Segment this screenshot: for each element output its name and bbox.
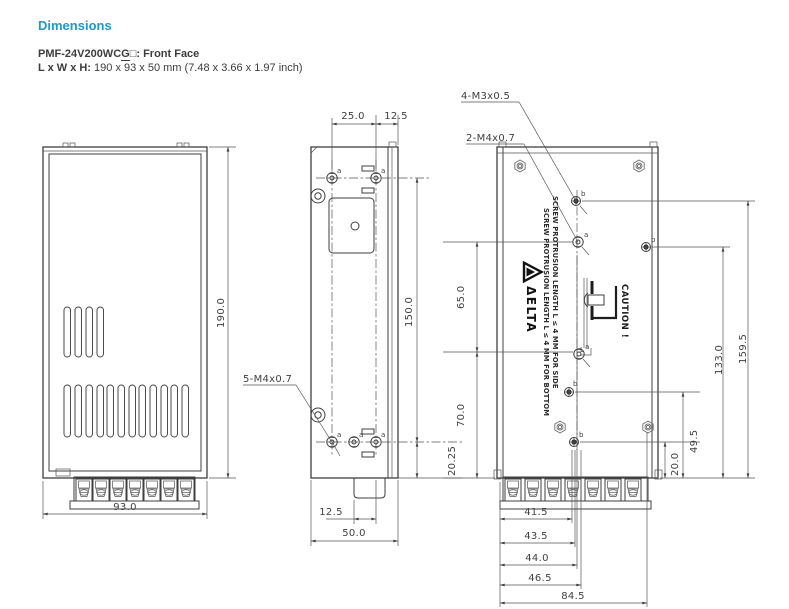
side-dim-12-5-top: 12.5 [384, 111, 407, 122]
back-terminal-block [500, 477, 651, 509]
delta-logo: ΔELTA [524, 263, 542, 333]
hole-marker: b [581, 190, 586, 198]
dimension-drawing: 190.0 93.0 a a a a a [0, 0, 789, 609]
back-dim-133: 133.0 [714, 345, 725, 375]
caution-l-label: L [580, 346, 584, 354]
hole-marker: a [381, 167, 385, 175]
hole-marker: b [651, 236, 656, 244]
back-dim-65: 65.0 [456, 286, 467, 309]
back-dim-43-5: 43.5 [524, 531, 547, 542]
hole-marker: a [359, 431, 363, 439]
hole-marker: a [337, 431, 341, 439]
caution-label: CAUTION ! [619, 284, 629, 338]
side-bottom-offset-dim: 20.25 [447, 446, 458, 476]
front-view-drawing: 190.0 93.0 [43, 143, 236, 519]
back-dim-20: 20.0 [670, 453, 681, 476]
back-dim-44: 44.0 [525, 553, 548, 564]
side-hole-callout: 5-M4x0.7 [243, 374, 292, 385]
side-view-drawing: a a a a a 5-M4x0.7 25.0 12.5 [243, 111, 462, 546]
note-screw-side: SCREW PROTRUSION LENGTH L ≤ 4 MM FOR SID… [551, 196, 559, 389]
back-dim-84-5: 84.5 [561, 591, 584, 602]
back-dim-46-5: 46.5 [528, 573, 551, 584]
front-height-dim: 190.0 [216, 298, 227, 328]
hole-marker: b [579, 431, 584, 439]
callout-m4: 2-M4x0.7 [466, 133, 515, 144]
side-height-dim: 150.0 [404, 297, 415, 327]
note-screw-bottom: SCREW PROTRUSION LENGTH L ≤ 4 MM FOR BOT… [542, 208, 550, 416]
back-dim-41-5: 41.5 [524, 507, 547, 518]
side-width-dim: 50.0 [342, 528, 365, 539]
back-dim-70: 70.0 [456, 404, 467, 427]
back-dim-49-5: 49.5 [689, 430, 700, 453]
hole-marker: a [381, 431, 385, 439]
front-width-dim: 93.0 [113, 502, 136, 513]
back-view-drawing: b b b b a a 4-M3x0.5 2-M4x0.7 SCREW PROT… [443, 91, 755, 607]
delta-wordmark: ΔELTA [524, 286, 538, 333]
side-dim-25: 25.0 [341, 111, 364, 122]
back-dim-159-5: 159.5 [738, 334, 749, 364]
caution-figure: L CAUTION ! [580, 278, 629, 355]
callout-m3: 4-M3x0.5 [461, 91, 510, 102]
side-hole-pitch-dim: 12.5 [319, 507, 342, 518]
hole-marker: a [337, 167, 341, 175]
hole-marker: a [584, 231, 588, 239]
